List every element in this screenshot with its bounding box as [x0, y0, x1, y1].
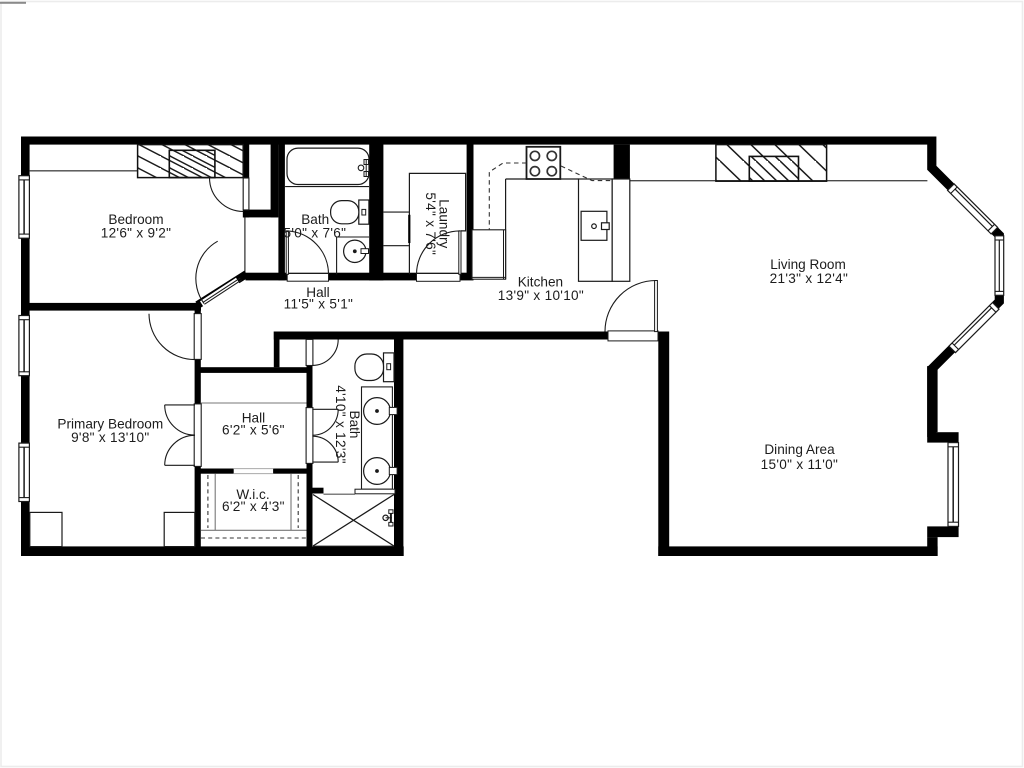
- svg-text:21'3" x 12'4": 21'3" x 12'4": [770, 271, 848, 286]
- svg-text:Dining Area: Dining Area: [764, 442, 835, 457]
- svg-text:6'2" x 4'3": 6'2" x 4'3": [222, 499, 285, 514]
- svg-text:Bath: Bath: [347, 411, 362, 439]
- svg-text:12'6" x 9'2": 12'6" x 9'2": [101, 226, 172, 241]
- svg-text:Primary Bedroom: Primary Bedroom: [57, 416, 163, 431]
- svg-text:6'2" x 5'6": 6'2" x 5'6": [222, 423, 285, 438]
- svg-text:Living Room: Living Room: [770, 257, 846, 272]
- svg-text:9'8" x 13'10": 9'8" x 13'10": [71, 430, 149, 445]
- svg-text:13'9" x 10'10": 13'9" x 10'10": [498, 288, 584, 303]
- svg-text:15'0" x 11'0": 15'0" x 11'0": [761, 457, 838, 472]
- svg-text:4'10" x 12'3": 4'10" x 12'3": [333, 385, 348, 463]
- svg-text:5'4" x 7'6": 5'4" x 7'6": [423, 192, 438, 255]
- svg-text:5'0" x 7'6": 5'0" x 7'6": [284, 226, 347, 241]
- svg-text:11'5" x 5'1": 11'5" x 5'1": [284, 296, 354, 311]
